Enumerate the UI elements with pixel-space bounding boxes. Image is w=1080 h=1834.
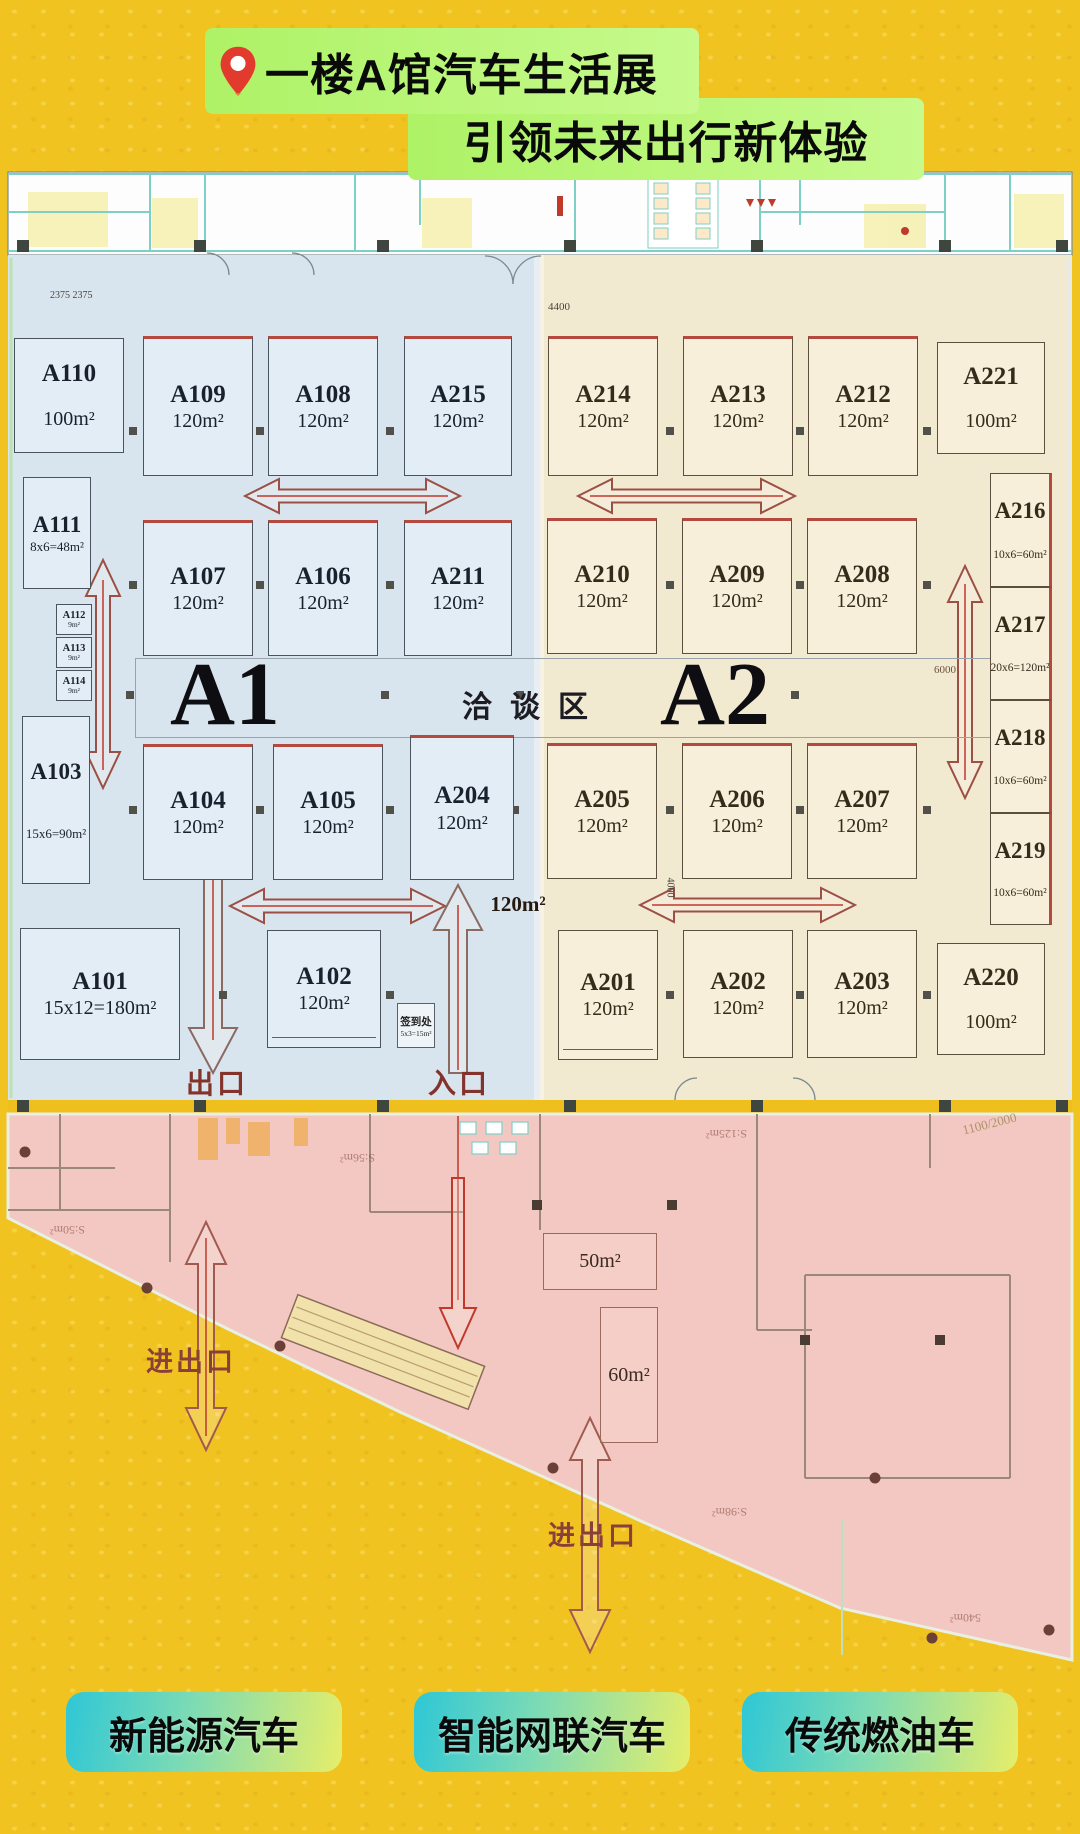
booth-id-label: A103 bbox=[30, 760, 81, 784]
gate-label-1: 进出口 bbox=[146, 1340, 236, 1379]
booth-area-label: 120m² bbox=[711, 591, 763, 612]
booth-A201: A201120m² bbox=[558, 930, 658, 1060]
booth-id-label: A218 bbox=[994, 726, 1045, 750]
zone-a1-label: A1 bbox=[145, 650, 305, 740]
booth-area-label: 120m² bbox=[836, 816, 888, 837]
floating-area-label: 120m² bbox=[472, 892, 564, 917]
booth-A208: A208120m² bbox=[807, 518, 917, 654]
booth-id-label: A102 bbox=[296, 964, 352, 990]
header-highlight-1: 一楼A馆汽车生活展 bbox=[205, 28, 699, 114]
booth-area-label: 9m² bbox=[68, 621, 80, 629]
booth-id-label: A106 bbox=[295, 564, 351, 590]
booth-A109: A109120m² bbox=[143, 336, 253, 476]
booth-id-label: A202 bbox=[710, 969, 766, 995]
exit-label: 出口 bbox=[186, 1062, 248, 1102]
booth-A205: A205120m² bbox=[547, 743, 657, 879]
booth-id-label: A203 bbox=[834, 969, 890, 995]
booth-area-label: 120m² bbox=[436, 813, 488, 834]
booth-id-label: A215 bbox=[430, 382, 486, 408]
dim-pink-right: 1100/2000 bbox=[961, 1110, 1018, 1139]
entrance-label: 入口 bbox=[428, 1062, 490, 1102]
booth-area-label: 120m² bbox=[432, 593, 484, 614]
faded-area-label: S:56m² bbox=[340, 1150, 375, 1165]
booth-A216: A21610x6=60m² bbox=[990, 473, 1052, 587]
booth-A101: A10115x12=180m² bbox=[20, 928, 180, 1060]
booth-A112: A1129m² bbox=[56, 604, 92, 635]
dim-mid-corridor: 4000 bbox=[665, 878, 676, 898]
booth-area-label: 100m² bbox=[965, 411, 1017, 432]
legend-intelligent-connected-vehicles[interactable]: 智能网联汽车 bbox=[414, 1692, 690, 1772]
booth-area-label: 8x6=48m² bbox=[30, 540, 84, 554]
booth-id-label: A220 bbox=[963, 965, 1019, 991]
booth-id-label: A107 bbox=[170, 564, 226, 590]
dim-top-entrance: 4400 bbox=[548, 301, 570, 313]
booth-id-label: A206 bbox=[709, 787, 765, 813]
booth-area-label: 10x6=60m² bbox=[993, 887, 1046, 899]
booth-A202: A202120m² bbox=[683, 930, 793, 1058]
header-title: 一楼A馆汽车生活展 bbox=[265, 39, 658, 103]
booth-area-label: 120m² bbox=[712, 411, 764, 432]
booth-area-label: 120m² bbox=[576, 816, 628, 837]
faded-area-label: S:125m² bbox=[706, 1126, 747, 1141]
booth-A107: A107120m² bbox=[143, 520, 253, 656]
booth-area-label: 120m² bbox=[297, 593, 349, 614]
booth-id-label: A208 bbox=[834, 562, 890, 588]
booth-id-label: A204 bbox=[434, 783, 490, 809]
booth-A215: A215120m² bbox=[404, 336, 512, 476]
pink-room-50m²: 50m² bbox=[543, 1233, 657, 1290]
booth-area-label: 9m² bbox=[68, 687, 80, 695]
booth-id-label: A209 bbox=[709, 562, 765, 588]
booth-area-label: 120m² bbox=[302, 817, 354, 838]
booth-id-label: A101 bbox=[72, 969, 128, 995]
booth-id-label: A211 bbox=[431, 564, 485, 590]
booth-id-label: A207 bbox=[834, 787, 890, 813]
faded-area-label: S:98m² bbox=[712, 1504, 747, 1519]
booth-id-label: A105 bbox=[300, 788, 356, 814]
dim-right-corridor: 6000 bbox=[934, 664, 956, 676]
booth-A105: A105120m² bbox=[273, 744, 383, 880]
booth-id-label: A213 bbox=[710, 382, 766, 408]
booth-area-label: 120m² bbox=[172, 411, 224, 432]
booth-area-label: 120m² bbox=[576, 591, 628, 612]
booth-A211: A211120m² bbox=[404, 520, 512, 656]
booth-A111: A1118x6=48m² bbox=[23, 477, 91, 589]
pink-room-60m²: 60m² bbox=[600, 1307, 658, 1443]
booth-id-label: A210 bbox=[574, 562, 630, 588]
zone-a2-label: A2 bbox=[635, 650, 795, 740]
booth-area-label: 100m² bbox=[43, 409, 95, 430]
booth-area-label: 120m² bbox=[836, 591, 888, 612]
booth-id-label: A205 bbox=[574, 787, 630, 813]
booth-id-label: A219 bbox=[994, 839, 1045, 863]
booth-A103: A10315x6=90m² bbox=[22, 716, 90, 884]
booth-A213: A213120m² bbox=[683, 336, 793, 476]
negotiation-area-label: 洽谈区 bbox=[462, 682, 606, 726]
booth-area-label: 10x6=60m² bbox=[993, 775, 1046, 787]
signin-booth: 签到处 5x3=15m² bbox=[397, 1003, 435, 1048]
booth-id-label: A110 bbox=[42, 361, 96, 387]
booth-A108: A108120m² bbox=[268, 336, 378, 476]
booth-area-label: 120m² bbox=[837, 411, 889, 432]
booth-area-label: 120m² bbox=[432, 411, 484, 432]
booth-area-label: 120m² bbox=[711, 816, 763, 837]
booth-A106: A106120m² bbox=[268, 520, 378, 656]
booth-id-label: A212 bbox=[835, 382, 891, 408]
booth-area-label: 15x6=90m² bbox=[26, 827, 86, 841]
booth-A113: A1139m² bbox=[56, 637, 92, 668]
location-pin-icon bbox=[219, 46, 257, 96]
booth-area-label: 15x12=180m² bbox=[44, 998, 157, 1019]
booth-area-label: 120m² bbox=[172, 593, 224, 614]
booth-id-label: A214 bbox=[575, 382, 631, 408]
booth-A203: A203120m² bbox=[807, 930, 917, 1058]
booth-A204: A204120m² bbox=[410, 735, 514, 880]
signin-size: 5x3=15m² bbox=[400, 1029, 431, 1038]
booth-area-label: 120m² bbox=[297, 411, 349, 432]
booth-A104: A104120m² bbox=[143, 744, 253, 880]
booth-area-label: 120m² bbox=[577, 411, 629, 432]
booth-A212: A212120m² bbox=[808, 336, 918, 476]
booth-area-label: 120m² bbox=[172, 817, 224, 838]
header-subtitle: 引领未来出行新体验 bbox=[464, 107, 869, 171]
booth-id-label: A216 bbox=[994, 499, 1045, 523]
booth-area-label: 9m² bbox=[68, 654, 80, 662]
booth-id-label: A217 bbox=[994, 613, 1045, 637]
booth-A210: A210120m² bbox=[547, 518, 657, 654]
gate-label-2: 进出口 bbox=[548, 1514, 638, 1553]
booth-area-label: 100m² bbox=[965, 1012, 1017, 1033]
booth-A217: A21720x6=120m² bbox=[990, 587, 1052, 700]
booth-id-label: A201 bbox=[580, 970, 636, 996]
booth-A220: A220100m² bbox=[937, 943, 1045, 1055]
booth-A206: A206120m² bbox=[682, 743, 792, 879]
faded-area-label: 540m² bbox=[950, 1610, 981, 1625]
poster-canvas: 引领未来出行新体验 一楼A馆汽车生活展 A1 A2 洽谈区 出口 入口 进出口 … bbox=[0, 0, 1080, 1834]
booth-A102: A102120m² bbox=[267, 930, 381, 1048]
booth-A209: A209120m² bbox=[682, 518, 792, 654]
booth-A114: A1149m² bbox=[56, 670, 92, 701]
signin-label: 签到处 bbox=[400, 1014, 432, 1029]
booth-area-label: 10x6=60m² bbox=[993, 549, 1046, 561]
booth-area-label: 120m² bbox=[712, 998, 764, 1019]
booth-id-label: A221 bbox=[963, 364, 1019, 390]
booth-area-label: 120m² bbox=[298, 993, 350, 1014]
floor-plan: A1 A2 洽谈区 出口 入口 进出口 进出口 120m² 签到处 5x3=15… bbox=[0, 0, 1080, 1834]
booth-area-label: 20x6=120m² bbox=[990, 662, 1049, 674]
booth-area-label: 120m² bbox=[582, 999, 634, 1020]
booth-area-label: 120m² bbox=[836, 998, 888, 1019]
booth-id-label: A111 bbox=[33, 513, 82, 537]
booth-id-label: A109 bbox=[170, 382, 226, 408]
booth-id-label: A104 bbox=[170, 788, 226, 814]
booth-A110: A110100m² bbox=[14, 338, 124, 453]
booth-id-label: A108 bbox=[295, 382, 351, 408]
legend-traditional-fuel-vehicles[interactable]: 传统燃油车 bbox=[742, 1692, 1018, 1772]
legend-new-energy-vehicles[interactable]: 新能源汽车 bbox=[66, 1692, 342, 1772]
booth-A218: A21810x6=60m² bbox=[990, 700, 1052, 813]
booth-A219: A21910x6=60m² bbox=[990, 813, 1052, 925]
dim-top-left: 2375 2375 bbox=[50, 290, 93, 301]
booth-A214: A214120m² bbox=[548, 336, 658, 476]
booth-A221: A221100m² bbox=[937, 342, 1045, 454]
faded-area-label: S:50m² bbox=[50, 1222, 85, 1237]
booth-A207: A207120m² bbox=[807, 743, 917, 879]
